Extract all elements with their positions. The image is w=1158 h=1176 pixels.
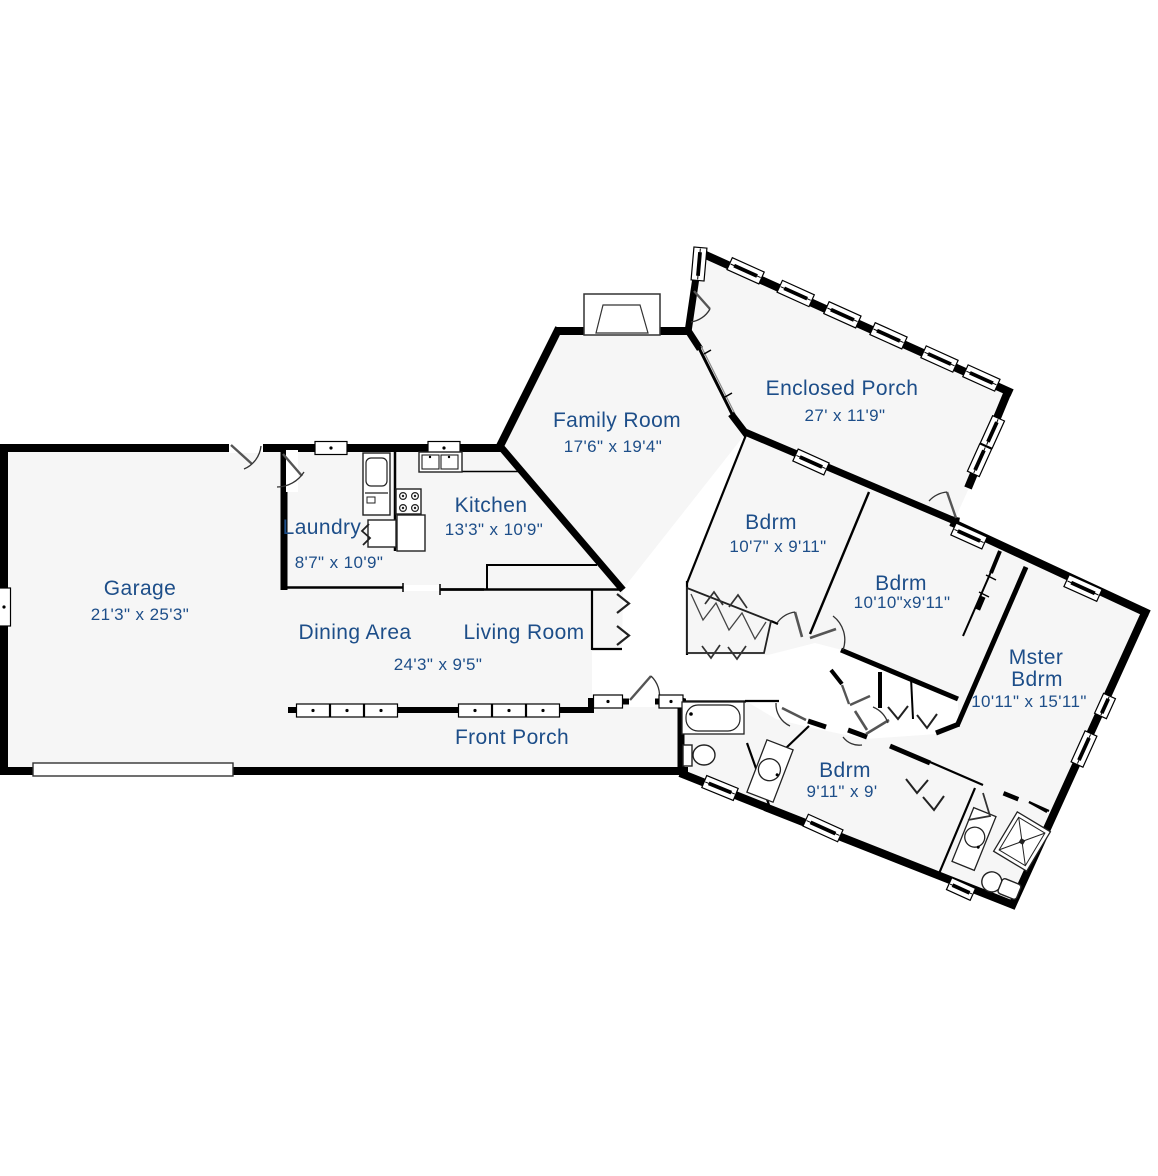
svg-text:Mster: Mster [1009,646,1064,669]
svg-text:21'3" x 25'3": 21'3" x 25'3" [91,605,189,624]
svg-text:Bdrm: Bdrm [745,511,797,534]
svg-text:10'10"x9'11": 10'10"x9'11" [854,593,951,612]
svg-text:8'7" x 10'9": 8'7" x 10'9" [295,553,384,572]
svg-text:Front Porch: Front Porch [455,726,569,749]
svg-text:Laundry: Laundry [283,516,362,539]
svg-text:10'11" x 15'11": 10'11" x 15'11" [971,692,1087,711]
svg-text:Bdrm: Bdrm [819,759,871,782]
svg-text:27' x 11'9": 27' x 11'9" [805,406,886,425]
svg-text:Kitchen: Kitchen [455,494,528,517]
svg-text:Living Room: Living Room [463,621,584,644]
svg-text:Dining Area: Dining Area [299,621,412,644]
svg-text:Enclosed Porch: Enclosed Porch [766,377,919,400]
svg-text:Family Room: Family Room [553,409,681,432]
svg-text:17'6" x 19'4": 17'6" x 19'4" [564,437,662,456]
svg-text:Garage: Garage [104,577,176,600]
svg-text:10'7" x 9'11": 10'7" x 9'11" [729,537,826,556]
svg-text:13'3" x 10'9": 13'3" x 10'9" [445,520,543,539]
svg-text:9'11" x 9': 9'11" x 9' [806,782,877,801]
svg-text:24'3" x 9'5": 24'3" x 9'5" [394,655,483,674]
svg-text:Bdrm: Bdrm [1011,668,1063,691]
svg-text:Bdrm: Bdrm [875,572,927,595]
